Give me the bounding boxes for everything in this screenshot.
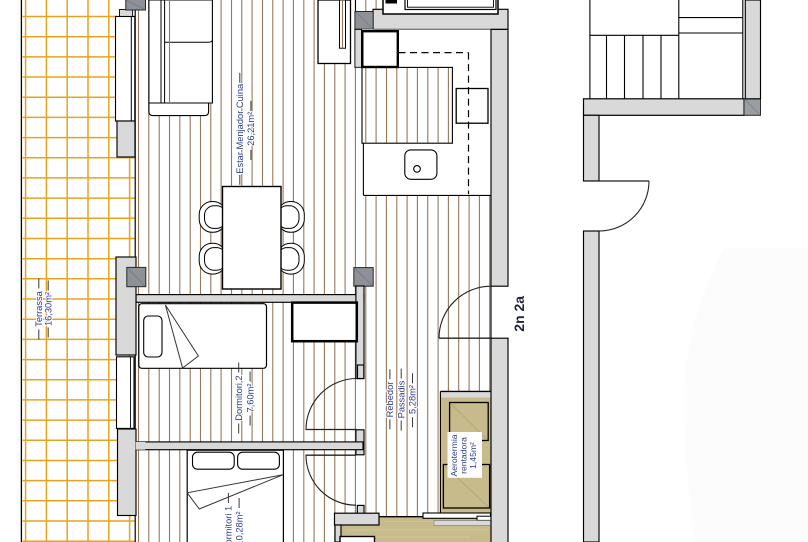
svg-text:2n 2a: 2n 2a [511,296,527,332]
svg-text:Terrassa16,30m²: Terrassa16,30m² [34,290,53,326]
svg-text:RebedorPassadis5,28m²: RebedorPassadis5,28m² [385,380,418,418]
